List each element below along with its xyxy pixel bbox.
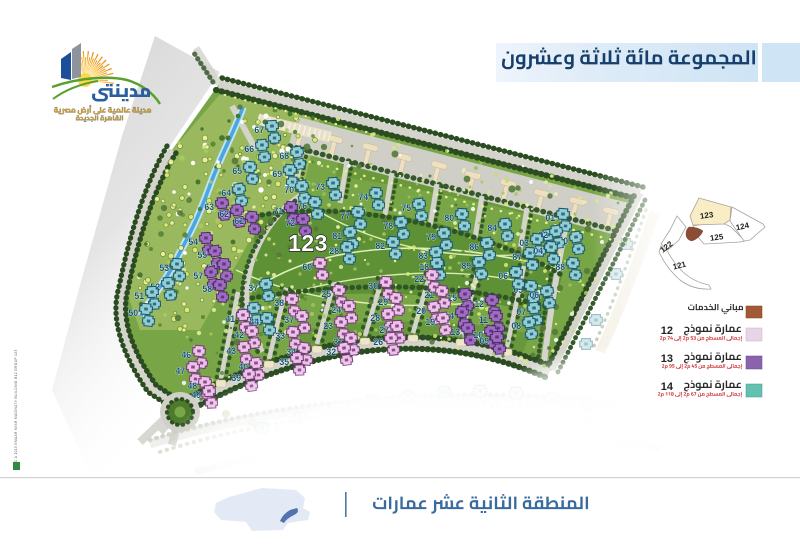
svg-text:49: 49 [191,390,201,400]
svg-text:87: 87 [512,252,522,262]
svg-text:12: 12 [661,325,673,337]
svg-text:77: 77 [340,211,350,221]
svg-text:28: 28 [370,313,380,323]
svg-text:21: 21 [424,290,434,300]
svg-text:60: 60 [302,262,312,272]
svg-text:125: 125 [709,232,724,243]
svg-text:23: 23 [323,321,333,331]
svg-text:70: 70 [284,185,294,195]
svg-text:38: 38 [274,298,284,308]
svg-text:81: 81 [332,231,342,241]
svg-text:24: 24 [331,305,341,315]
svg-text:123: 123 [699,210,714,221]
svg-text:35: 35 [279,357,289,367]
svg-text:12: 12 [474,299,484,309]
svg-text:89: 89 [461,261,471,271]
svg-text:61: 61 [234,216,244,226]
svg-text:63: 63 [204,202,214,212]
svg-text:71: 71 [273,206,283,216]
svg-text:58: 58 [202,284,212,294]
svg-text:42: 42 [234,330,244,340]
svg-text:67: 67 [254,125,264,135]
svg-text:37: 37 [284,315,294,325]
svg-text:09: 09 [479,336,489,346]
svg-text:68: 68 [279,151,289,161]
svg-text:22: 22 [414,274,424,284]
svg-text:03: 03 [519,238,529,248]
svg-text:65: 65 [232,166,242,176]
svg-text:25: 25 [321,289,331,299]
svg-text:64: 64 [221,188,231,198]
svg-text:62: 62 [219,209,229,219]
svg-text:04: 04 [533,246,543,256]
svg-text:37: 37 [248,283,258,293]
svg-text:43: 43 [226,346,236,356]
svg-text:46: 46 [181,350,191,360]
svg-text:19: 19 [425,317,435,327]
svg-text:54: 54 [188,237,198,247]
svg-text:26: 26 [373,337,383,347]
svg-text:08: 08 [511,321,521,331]
svg-text:01: 01 [545,213,555,223]
svg-text:39: 39 [231,373,241,383]
svg-text:11: 11 [479,315,488,325]
svg-text:47: 47 [175,366,185,376]
svg-text:83: 83 [418,251,428,261]
svg-text:20: 20 [416,306,426,316]
svg-text:123: 123 [288,230,328,256]
svg-text:51: 51 [134,291,144,301]
svg-text:84: 84 [487,223,497,233]
svg-text:74: 74 [358,192,368,202]
svg-text:29: 29 [378,297,388,307]
svg-text:55: 55 [197,250,207,260]
svg-text:82: 82 [375,241,385,251]
svg-text:06: 06 [529,290,539,300]
svg-text:76: 76 [297,201,307,211]
svg-text:13: 13 [661,353,673,365]
svg-text:33: 33 [275,331,285,341]
svg-text:78: 78 [383,221,393,231]
svg-text:41: 41 [225,314,235,324]
svg-text:69: 69 [272,169,282,179]
svg-text:32: 32 [326,347,336,357]
svg-text:75: 75 [401,203,411,213]
svg-text:C A 2015 EMAAR MISR MADINATY B: C A 2015 EMAAR MISR MADINATY BUILDING B1… [14,349,18,462]
svg-text:06: 06 [498,271,508,281]
svg-text:30: 30 [368,281,378,291]
svg-text:53: 53 [159,263,169,273]
svg-text:50: 50 [128,308,138,318]
svg-text:73: 73 [315,182,325,192]
svg-text:66: 66 [244,144,254,154]
svg-text:79: 79 [426,232,436,242]
svg-text:72: 72 [285,218,295,228]
svg-text:07: 07 [516,307,526,317]
svg-text:28: 28 [329,246,339,256]
svg-text:14: 14 [661,381,674,393]
svg-text:86: 86 [469,242,479,252]
svg-text:57: 57 [193,271,203,281]
svg-text:80: 80 [444,213,454,223]
